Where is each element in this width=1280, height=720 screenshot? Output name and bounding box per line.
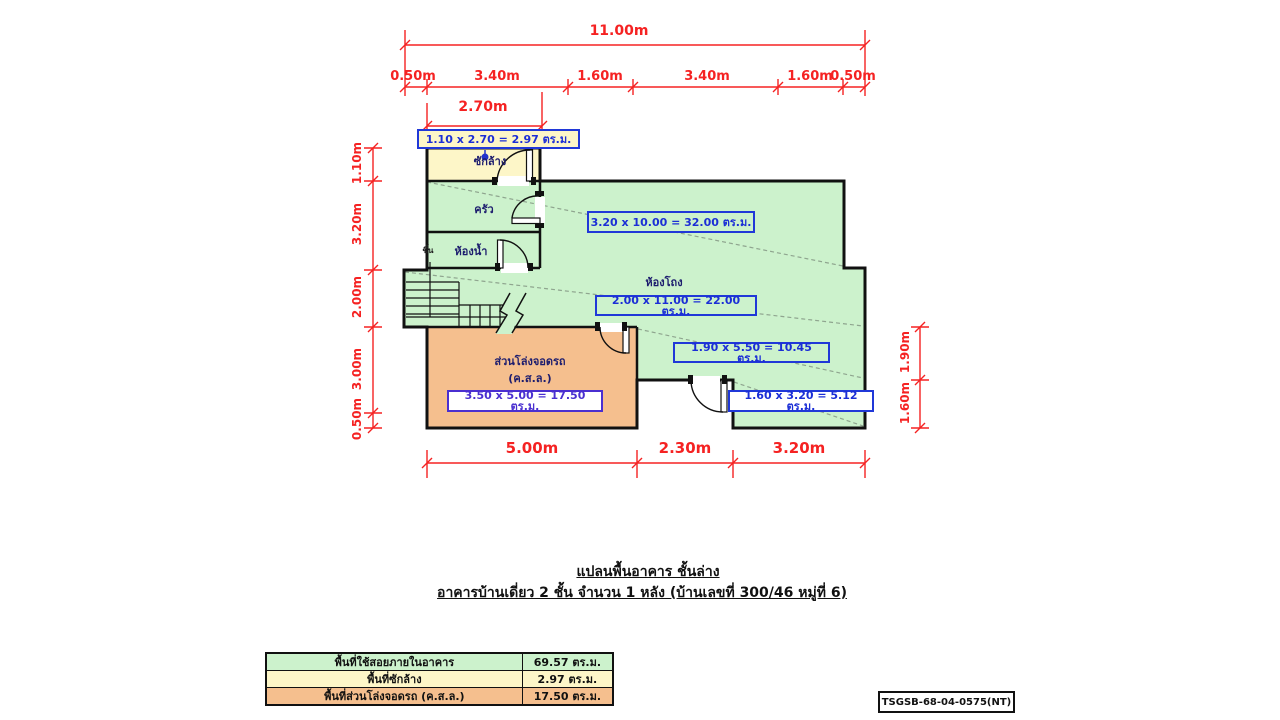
dim-top-total: 11.00m <box>569 24 669 38</box>
dim-bottom-2: 2.30m <box>645 441 725 456</box>
room-label-kitchen: ครัว <box>444 204 524 215</box>
dim-top-seg-4: 3.40m <box>677 70 737 83</box>
table-row: พื้นที่ซักล้าง 2.97 ตร.ม. <box>266 671 613 688</box>
dim-right-2: 1.60m <box>899 371 911 435</box>
area-box-laundry: 1.10 x 2.70 = 2.97 ตร.ม. <box>417 129 580 149</box>
table-row-label: พื้นที่ส่วนโล่งจอดรถ (ค.ส.ล.) <box>266 688 522 706</box>
area-box-parking-zone: 3.50 x 5.00 = 17.50 ตร.ม. <box>447 390 603 412</box>
table-row: พื้นที่ใช้สอยภายในอาคาร 69.57 ตร.ม. <box>266 653 613 671</box>
dim-top-seg-1: 0.50m <box>383 70 443 83</box>
table-row-value: 69.57 ตร.ม. <box>522 653 613 671</box>
sheet-subtitle: อาคารบ้านเดี่ยว 2 ชั้น จำนวน 1 หลัง (บ้า… <box>392 585 892 602</box>
room-label-parking: ส่วนโล่งจอดรถ <box>460 356 600 367</box>
table-row-value: 17.50 ตร.ม. <box>522 688 613 706</box>
dim-top-sub: 2.70m <box>443 100 523 114</box>
document-code: TSGSB-68-04-0575(NT) <box>878 691 1015 713</box>
dim-top-seg-6: 0.50m <box>823 70 883 83</box>
sheet-title: แปลนพื้นอาคาร ชั้นล่าง <box>398 564 898 581</box>
room-label-bathroom: ห้องน้ำ <box>431 246 511 257</box>
area-box-lower-right-zone: 1.60 x 3.20 = 5.12 ตร.ม. <box>728 390 874 412</box>
area-box-right-zone: 1.90 x 5.50 = 10.45 ตร.ม. <box>673 342 830 363</box>
dim-left-1: 1.10m <box>351 131 363 195</box>
table-row: พื้นที่ส่วนโล่งจอดรถ (ค.ส.ล.) 17.50 ตร.ม… <box>266 688 613 706</box>
room-label-parking-sub: (ค.ส.ล.) <box>460 373 600 384</box>
area-summary-table: พื้นที่ใช้สอยภายในอาคาร 69.57 ตร.ม. พื้น… <box>265 652 614 706</box>
floor-plan-sheet: 11.00m 0.50m 3.40m 1.60m 3.40m 1.60m 0.5… <box>0 0 1280 720</box>
dim-bottom-1: 5.00m <box>492 441 572 456</box>
dim-bottom-3: 3.20m <box>759 441 839 456</box>
floor-plan-drawing <box>0 0 1280 720</box>
area-box-hall-zone: 2.00 x 11.00 = 22.00 ตร.ม. <box>595 295 757 316</box>
area-box-upper-zone: 3.20 x 10.00 = 32.00 ตร.ม. <box>587 211 755 233</box>
dim-top-seg-2: 3.40m <box>467 70 527 83</box>
table-row-value: 2.97 ตร.ม. <box>522 671 613 688</box>
room-label-hall: ห้องโถง <box>624 277 704 288</box>
table-row-label: พื้นที่ใช้สอยภายในอาคาร <box>266 653 522 671</box>
stairs-up-label: ขึ้น <box>415 247 441 255</box>
dim-top-seg-3: 1.60m <box>570 70 630 83</box>
dim-left-2: 3.20m <box>351 192 363 256</box>
table-row-label: พื้นที่ซักล้าง <box>266 671 522 688</box>
dim-left-3: 2.00m <box>351 265 363 329</box>
dim-left-5: 0.50m <box>351 387 363 451</box>
room-label-laundry: ซักล้าง <box>450 156 530 167</box>
